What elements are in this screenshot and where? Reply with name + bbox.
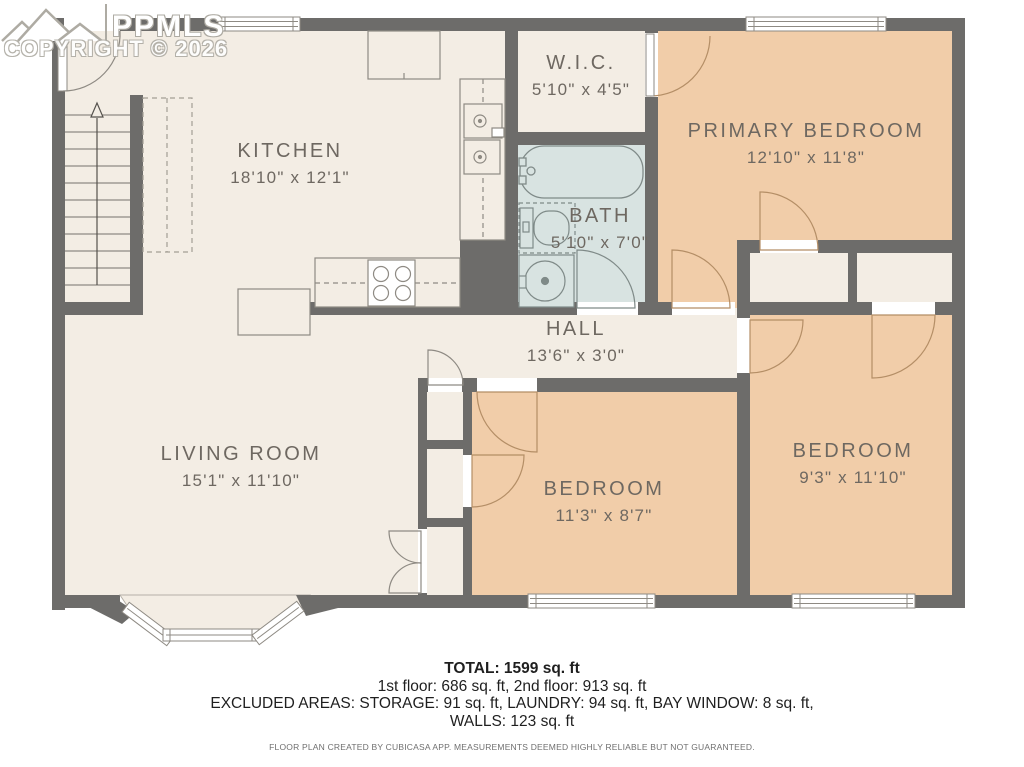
room-label-bedroom-right: BEDROOM 9'3" x 11'10" bbox=[793, 440, 914, 488]
bay-window bbox=[65, 595, 338, 646]
kitchen-counter-right bbox=[460, 79, 505, 240]
room-label-primary-bedroom: PRIMARY BEDROOM 12'10" x 11'8" bbox=[688, 120, 925, 168]
summary-floors: 1st floor: 686 sq. ft, 2nd floor: 913 sq… bbox=[0, 678, 1024, 696]
bathtub-icon bbox=[519, 146, 643, 198]
primary-bedroom-window-icon bbox=[746, 17, 886, 31]
room-dimensions: 5'10" x 4'5" bbox=[532, 80, 630, 100]
wic-door bbox=[650, 36, 710, 96]
room-label-wic: W.I.C. 5'10" x 4'5" bbox=[532, 52, 630, 100]
disclaimer-text: FLOOR PLAN CREATED BY CUBICASA APP. MEAS… bbox=[0, 739, 1024, 757]
room-dimensions: 12'10" x 11'8" bbox=[688, 148, 925, 168]
room-dimensions: 15'1" x 11'10" bbox=[161, 471, 322, 491]
stair-direction-arrow-icon bbox=[91, 103, 103, 117]
room-label-bedroom-center: BEDROOM 11'3" x 8'7" bbox=[544, 478, 665, 526]
kitchen-counter-bottom bbox=[315, 258, 460, 307]
right-bedroom-door bbox=[750, 320, 803, 373]
bath-door bbox=[577, 250, 635, 308]
area-summary: TOTAL: 1599 sq. ft 1st floor: 686 sq. ft… bbox=[0, 660, 1024, 757]
sink-icon bbox=[519, 255, 574, 307]
room-dimensions: 5'10" x 7'0" bbox=[551, 233, 649, 253]
room-name: LIVING ROOM bbox=[161, 443, 322, 466]
ppmls-watermark: PPMLS COPYRIGHT © 2026 bbox=[0, 0, 260, 70]
middle-closet-door bbox=[472, 455, 524, 507]
summary-excluded: EXCLUDED AREAS: STORAGE: 91 sq. ft, LAUN… bbox=[0, 695, 1024, 713]
summary-walls: WALLS: 123 sq. ft bbox=[0, 713, 1024, 731]
center-bedroom-door bbox=[477, 392, 537, 452]
right-bedroom-closet-door bbox=[872, 315, 935, 378]
kitchen-counter-top bbox=[368, 31, 440, 79]
appliance-icon bbox=[464, 104, 504, 138]
room-dimensions: 13'6" x 3'0" bbox=[527, 346, 625, 366]
living-room-closet-doors bbox=[389, 531, 421, 593]
room-label-bath: BATH 5'10" x 7'0" bbox=[551, 205, 649, 253]
summary-total: TOTAL: 1599 sq. ft bbox=[0, 660, 1024, 678]
right-bedroom-window-icon bbox=[792, 594, 915, 608]
room-label-hall: HALL 13'6" x 3'0" bbox=[527, 318, 625, 366]
room-name: W.I.C. bbox=[532, 52, 630, 75]
room-dimensions: 9'3" x 11'10" bbox=[793, 468, 914, 488]
room-name: HALL bbox=[527, 318, 625, 341]
plan-symbols bbox=[0, 0, 1024, 660]
room-dimensions: 18'10" x 12'1" bbox=[230, 168, 350, 188]
primary-bedroom-door bbox=[672, 250, 730, 308]
room-label-kitchen: KITCHEN 18'10" x 12'1" bbox=[230, 140, 350, 188]
room-name: KITCHEN bbox=[230, 140, 350, 163]
room-dimensions: 11'3" x 8'7" bbox=[544, 506, 665, 526]
stove-icon bbox=[368, 260, 415, 306]
room-name: BATH bbox=[551, 205, 649, 228]
center-bedroom-window-icon bbox=[528, 594, 655, 608]
floor-plan: KITCHEN 18'10" x 12'1" W.I.C. 5'10" x 4'… bbox=[0, 0, 1024, 767]
appliance-icon bbox=[464, 140, 500, 174]
upper-floor-outline bbox=[143, 98, 192, 252]
copyright-text: COPYRIGHT © 2026 bbox=[4, 36, 228, 62]
room-name: BEDROOM bbox=[793, 440, 914, 463]
room-label-living-room: LIVING ROOM 15'1" x 11'10" bbox=[161, 443, 322, 491]
room-name: BEDROOM bbox=[544, 478, 665, 501]
kitchen-island bbox=[238, 289, 310, 335]
room-name: PRIMARY BEDROOM bbox=[688, 120, 925, 143]
staircase bbox=[65, 103, 130, 285]
